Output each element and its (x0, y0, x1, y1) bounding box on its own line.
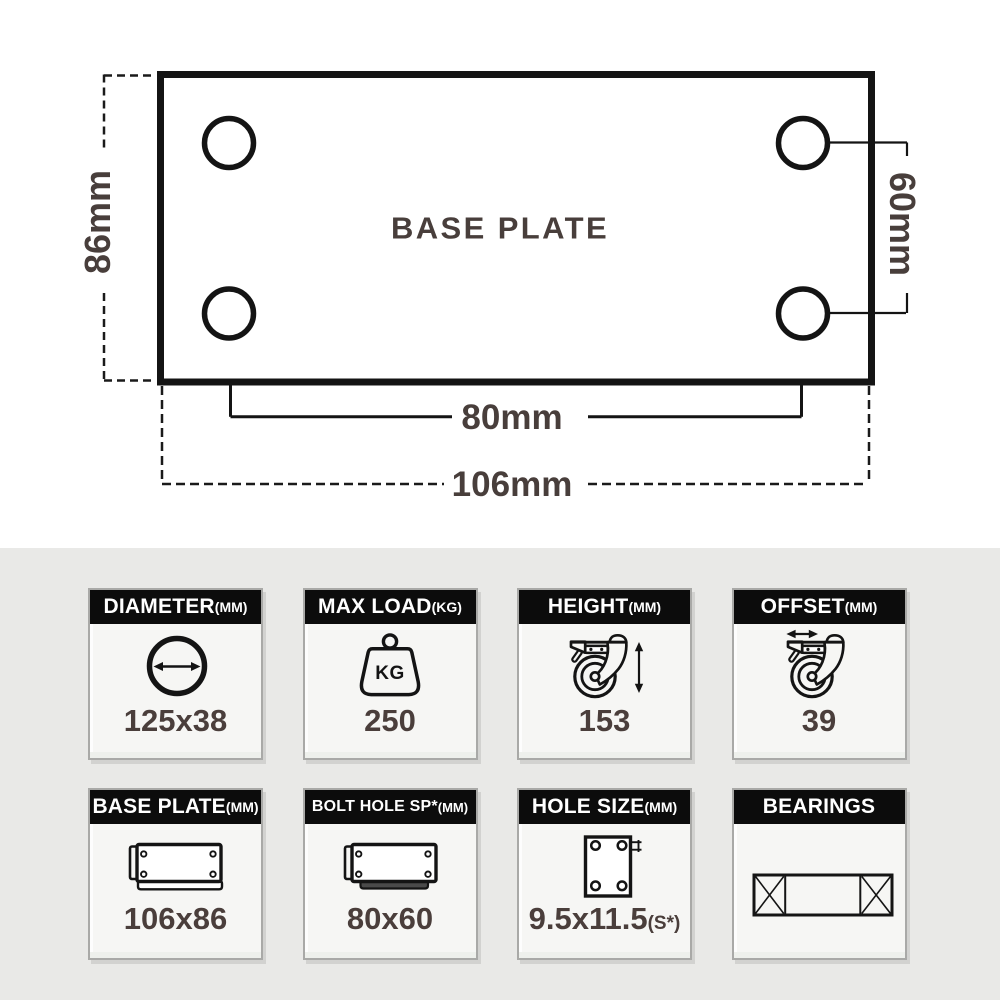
svg-text:KG: KG (375, 663, 405, 684)
svg-text:86mm: 86mm (77, 170, 118, 274)
svg-text:BASE PLATE: BASE PLATE (391, 211, 609, 246)
svg-text:60mm: 60mm (882, 172, 923, 276)
svg-text:80mm: 80mm (461, 398, 562, 437)
svg-text:106mm: 106mm (452, 465, 573, 504)
